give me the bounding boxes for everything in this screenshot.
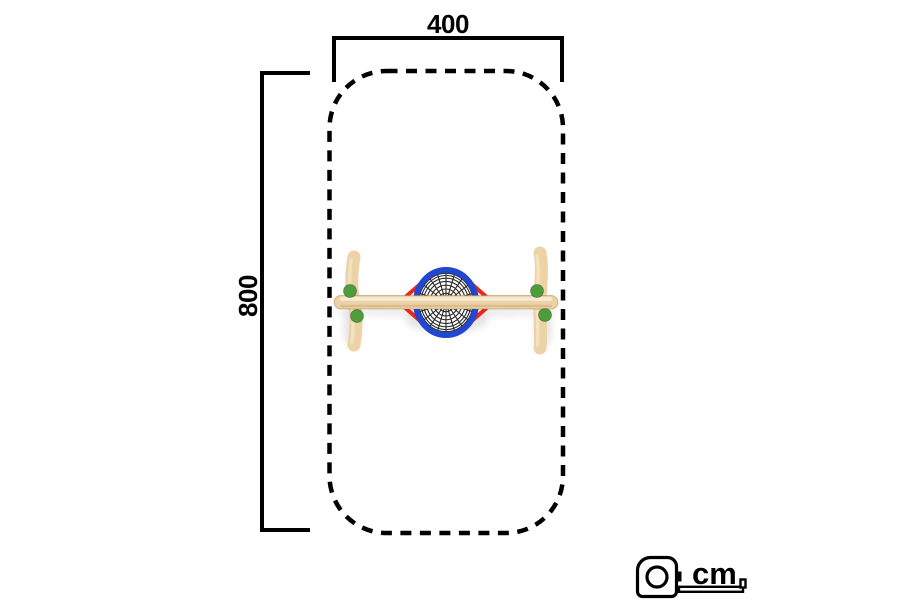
nest-swing-top-view — [332, 253, 560, 348]
post-cap — [351, 310, 364, 323]
post-cap — [539, 309, 552, 322]
plan-drawing-canvas: 400 800 — [0, 0, 900, 600]
wood-beam-highlight — [340, 297, 552, 300]
tape-exit-tab — [676, 572, 682, 582]
scale-legend: cm — [638, 556, 746, 597]
wood-beam-shade — [340, 305, 552, 307]
post-cap — [344, 285, 357, 298]
height-dimension: 800 — [233, 73, 310, 530]
tape-hook — [741, 580, 746, 588]
width-dimension-label: 400 — [427, 9, 469, 39]
tape-reel — [647, 567, 667, 587]
height-dimension-line — [262, 73, 310, 530]
unit-label: cm — [692, 556, 737, 591]
height-dimension-label: 800 — [233, 275, 263, 317]
wood-beam — [334, 296, 558, 310]
post-cap — [531, 285, 544, 298]
plan-drawing: 400 800 — [0, 0, 900, 600]
